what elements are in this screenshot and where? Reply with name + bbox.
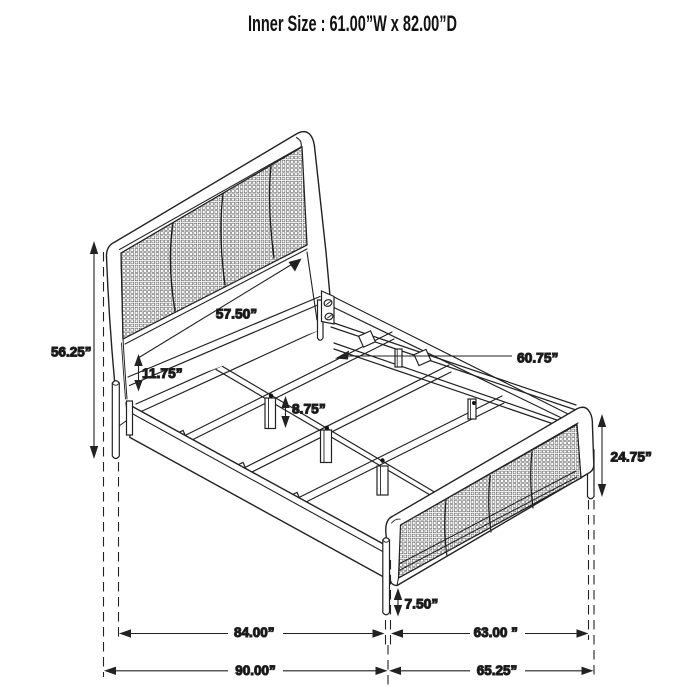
- svg-text:Inner Size : 61.00”W x 82.00”D: Inner Size : 61.00”W x 82.00”D: [248, 11, 457, 36]
- svg-text:90.00”: 90.00”: [235, 663, 276, 678]
- svg-text:60.75”: 60.75”: [517, 351, 558, 366]
- svg-text:11.75”: 11.75”: [142, 366, 183, 381]
- svg-text:63.00 ”: 63.00 ”: [474, 625, 518, 640]
- svg-text:56.25”: 56.25”: [51, 345, 92, 360]
- svg-text:57.50”: 57.50”: [216, 307, 257, 322]
- svg-text:65.25”: 65.25”: [477, 663, 518, 678]
- svg-text:84.00”: 84.00”: [234, 625, 275, 640]
- svg-text:8.75”: 8.75”: [292, 402, 326, 417]
- svg-text:7.50”: 7.50”: [405, 597, 439, 612]
- svg-text:24.75”: 24.75”: [611, 450, 652, 465]
